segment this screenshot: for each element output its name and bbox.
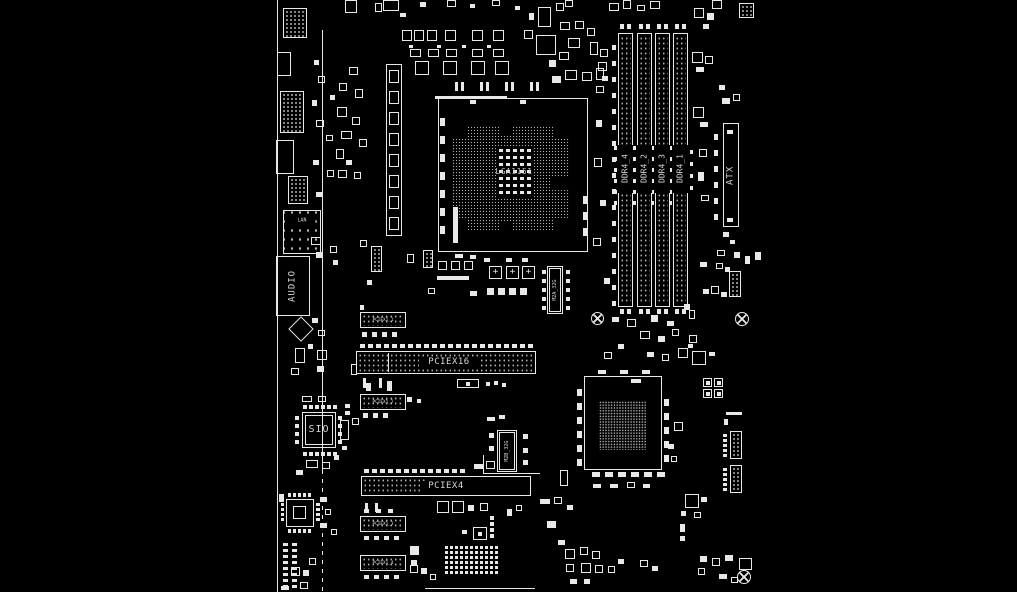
pad — [690, 162, 693, 166]
component-outline — [590, 42, 598, 55]
ddr-slot-pins — [639, 193, 650, 303]
component-pad — [700, 122, 708, 127]
component-pad — [314, 60, 319, 65]
component-outline — [445, 30, 456, 41]
pad-grid-cell — [499, 184, 503, 187]
pad — [315, 452, 319, 456]
pad-grid-cell — [520, 184, 524, 187]
pad-grid-cell — [520, 156, 524, 159]
component-outline — [536, 35, 556, 55]
pad — [598, 370, 606, 374]
codec-diamond-icon — [288, 316, 313, 341]
pad — [714, 150, 718, 156]
pad-grid-cell — [445, 561, 448, 564]
component-dotted-connector — [730, 465, 742, 493]
pad — [620, 370, 628, 374]
component-outline — [486, 461, 495, 469]
pciex1-label: PCIEX1_1 — [370, 316, 396, 323]
pad — [542, 306, 546, 310]
ddr-slot-pins — [657, 36, 668, 145]
component-outline — [594, 158, 602, 167]
component-outline — [524, 30, 533, 39]
component-outline — [627, 319, 636, 327]
pad — [440, 118, 445, 126]
component-outline — [386, 64, 402, 236]
pad — [612, 269, 616, 274]
pad — [303, 529, 306, 533]
pad — [309, 452, 313, 456]
pad — [723, 488, 727, 491]
pad-grid-cell — [455, 556, 458, 559]
pch-bga-grid — [599, 401, 646, 450]
pad — [605, 472, 613, 477]
pad — [368, 344, 373, 348]
atx-label: ATX — [723, 123, 739, 227]
component-outline — [580, 547, 588, 555]
component-outline — [640, 560, 648, 567]
component-pad — [721, 292, 727, 297]
component-outline — [326, 135, 333, 141]
pad-grid-cell — [495, 571, 498, 574]
pad-grid-cell — [475, 556, 478, 559]
pad — [723, 444, 727, 447]
component-outline — [311, 237, 321, 245]
pad — [612, 77, 616, 82]
pad — [490, 534, 494, 538]
component-outline — [692, 351, 706, 365]
pad — [664, 455, 669, 462]
component-pad — [567, 505, 573, 510]
pad — [338, 424, 342, 428]
component-pad — [726, 412, 742, 415]
pad-grid-cell — [527, 156, 531, 159]
pad — [364, 469, 369, 473]
pad — [283, 543, 288, 546]
component-outline — [596, 86, 604, 93]
component-outline — [593, 238, 601, 246]
component-pad — [618, 344, 624, 349]
pad — [614, 179, 617, 183]
component-outline — [300, 582, 308, 589]
pad — [714, 182, 718, 188]
component-outline — [345, 0, 357, 13]
component-pad — [489, 433, 494, 438]
pad — [380, 469, 385, 473]
component-outline — [538, 7, 551, 27]
component-pad — [437, 276, 469, 280]
pad — [293, 493, 296, 497]
component-pad — [410, 546, 419, 555]
pad-grid-cell — [470, 561, 473, 564]
component-pad — [570, 579, 577, 584]
pad — [364, 536, 369, 540]
pad — [440, 344, 445, 348]
component-outline — [471, 61, 485, 75]
pciex16-key — [388, 353, 389, 372]
pad — [394, 536, 399, 540]
pad — [327, 452, 331, 456]
component-capacitor — [473, 527, 487, 540]
component-pad — [480, 82, 483, 91]
motherboard-diagram: LGA1151DDR4_4DDR4_2DDR4_3DDR4_1PCIEX16PC… — [0, 0, 1017, 592]
component-outline — [291, 368, 299, 375]
component-pad — [529, 13, 534, 20]
component-pad — [602, 76, 608, 81]
pad-grid-cell — [460, 561, 463, 564]
pad — [614, 168, 617, 172]
component-pad — [549, 60, 556, 67]
component-outline — [472, 49, 483, 57]
pad-grid-cell — [485, 566, 488, 569]
component-pad — [680, 536, 685, 541]
pad-grid-cell — [485, 551, 488, 554]
pad — [303, 452, 307, 456]
component-pad — [346, 160, 352, 165]
pad — [288, 529, 291, 533]
pad — [723, 434, 727, 437]
component-outline — [587, 28, 595, 36]
pad — [490, 522, 494, 526]
component-pad — [530, 82, 533, 91]
component-outline — [427, 30, 437, 41]
ddr-slot-pins — [620, 36, 631, 145]
pad — [384, 575, 389, 579]
pad-grid-cell — [470, 556, 473, 559]
component-outline — [674, 422, 683, 431]
pad — [612, 125, 616, 130]
component-pad — [455, 254, 463, 258]
pad-grid-cell — [490, 546, 493, 549]
component-outline — [389, 70, 399, 83]
component-capacitor — [457, 379, 479, 388]
pad — [577, 431, 582, 438]
component-pad — [330, 95, 335, 100]
pciex4-label: PCIEX4 — [420, 481, 472, 492]
pad-grid-cell — [490, 556, 493, 559]
component-outline — [693, 107, 704, 118]
pad — [682, 309, 686, 314]
pad — [440, 172, 445, 180]
component-outline — [352, 117, 360, 125]
pad — [633, 157, 636, 161]
pad-grid-cell — [499, 156, 503, 159]
pad — [283, 579, 288, 582]
pad — [400, 344, 405, 348]
pad-grid-cell — [465, 556, 468, 559]
pad-grid-cell — [495, 551, 498, 554]
pad — [682, 24, 686, 29]
component-pad — [701, 497, 707, 502]
component-outline — [325, 509, 331, 515]
component-outline — [565, 70, 577, 80]
component-pad — [455, 82, 458, 91]
component-outline — [359, 139, 367, 147]
pad — [316, 513, 320, 516]
pad — [372, 469, 377, 473]
component-outline — [355, 89, 363, 98]
pad — [416, 344, 421, 348]
pad — [723, 473, 727, 476]
component-pad — [317, 366, 324, 372]
pad-grid-cell — [445, 571, 448, 574]
pad — [669, 201, 672, 205]
pad — [612, 285, 616, 290]
component-pad — [725, 267, 730, 272]
cpu-socket-notch — [452, 126, 468, 138]
pad — [480, 344, 485, 348]
component-outline — [430, 574, 436, 580]
component-outline — [351, 364, 357, 375]
pad-grid-cell — [455, 561, 458, 564]
component-pad — [502, 383, 506, 387]
pad-grid-cell — [475, 571, 478, 574]
pad-grid-cell — [480, 561, 483, 564]
component-outline — [443, 61, 457, 75]
pad-grid-cell — [445, 546, 448, 549]
pad-grid-cell — [490, 566, 493, 569]
component-outline — [493, 30, 504, 41]
component-pad — [707, 13, 714, 20]
component-outline — [446, 49, 457, 57]
pad-grid-cell — [513, 184, 517, 187]
pad — [292, 585, 297, 588]
pad — [428, 469, 433, 473]
component-capacitor — [703, 378, 712, 387]
component-outline — [592, 551, 600, 559]
pad-grid-cell — [480, 571, 483, 574]
pad-grid-cell — [470, 551, 473, 554]
pad — [327, 405, 331, 409]
component-pad — [652, 566, 658, 571]
component-pad — [499, 415, 505, 419]
component-pad — [700, 556, 707, 562]
ddr-slot-label: DDR4_1 — [673, 145, 688, 193]
ddr-slot-label: DDR4_3 — [655, 145, 670, 193]
silkscreen-line — [322, 30, 323, 470]
pad — [460, 469, 465, 473]
component-outline — [336, 149, 344, 159]
pad — [620, 24, 624, 29]
pad — [308, 529, 311, 533]
pad — [295, 424, 299, 428]
component-outline — [495, 61, 509, 75]
component-outline — [389, 91, 399, 104]
component-pad — [484, 258, 490, 262]
pad — [577, 389, 582, 396]
component-outline — [581, 563, 591, 573]
component-pad — [515, 6, 520, 10]
component-outline — [354, 172, 361, 179]
pad-grid-cell — [480, 551, 483, 554]
pad — [440, 226, 445, 234]
cpu-socket-notch — [554, 126, 570, 138]
component-pad — [366, 383, 371, 391]
silkscreen-line — [322, 470, 323, 592]
cpu-socket-notch — [552, 178, 570, 190]
component-pad — [584, 579, 590, 584]
component-outline — [672, 329, 679, 336]
component-outline — [452, 501, 464, 513]
pad — [664, 309, 668, 314]
component-pad — [643, 484, 650, 488]
component-outline — [566, 564, 574, 572]
ddr-slot-pins — [620, 193, 631, 303]
capacitor-plus-marker: + — [522, 266, 535, 279]
component-pad — [470, 291, 477, 296]
component-outline — [650, 1, 660, 9]
pad — [614, 157, 617, 161]
pad — [566, 279, 570, 283]
pad-grid-cell — [495, 556, 498, 559]
component-pad — [468, 505, 474, 511]
pad — [639, 309, 643, 314]
component-outline — [375, 3, 382, 12]
pad-grid-cell — [490, 551, 493, 554]
component-outline — [694, 8, 704, 18]
pad-grid-cell — [520, 149, 524, 152]
pad — [646, 309, 650, 314]
component-pad — [462, 530, 467, 534]
audio-label: AUDIO — [276, 256, 310, 316]
component-pad — [505, 82, 508, 91]
component-pad — [725, 555, 733, 561]
component-outline — [608, 566, 615, 573]
pad — [316, 518, 320, 521]
pad — [420, 469, 425, 473]
component-outline — [711, 286, 719, 294]
component-outline — [339, 83, 347, 91]
pad — [488, 344, 493, 348]
pad — [288, 493, 291, 497]
component-pad — [400, 13, 406, 17]
pad — [472, 344, 477, 348]
component-pad — [667, 321, 674, 326]
component-outline — [480, 503, 488, 511]
component-outline — [698, 568, 705, 575]
pad — [723, 454, 727, 457]
pad — [364, 575, 369, 579]
pad-grid-cell — [475, 566, 478, 569]
component-outline — [712, 0, 722, 9]
component-pad — [279, 494, 284, 502]
pad — [657, 24, 661, 29]
pad-grid-cell — [465, 561, 468, 564]
pad — [283, 549, 288, 552]
pad-grid-cell — [465, 546, 468, 549]
pad — [618, 472, 626, 477]
pad — [583, 228, 587, 236]
m2-connector-label: M2B_32G — [501, 438, 513, 464]
pad — [373, 413, 378, 418]
pad — [440, 208, 445, 216]
component-outline — [739, 558, 752, 570]
pad — [293, 529, 296, 533]
pad-grid-cell — [520, 191, 524, 194]
component-capacitor — [714, 378, 723, 387]
component-outline — [306, 460, 318, 468]
pad — [364, 509, 369, 513]
pad-grid-cell — [460, 566, 463, 569]
pad — [440, 154, 445, 162]
pad-grid-cell — [513, 156, 517, 159]
pad — [388, 509, 393, 513]
component-pad — [647, 352, 654, 357]
component-outline — [389, 133, 399, 146]
pad — [440, 190, 445, 198]
component-pad — [333, 260, 338, 265]
pad — [690, 186, 693, 190]
pad — [338, 440, 342, 444]
pad — [333, 452, 337, 456]
component-outline — [389, 112, 399, 125]
component-pad — [552, 76, 561, 83]
component-outline — [327, 170, 334, 177]
pad — [394, 575, 399, 579]
pad-grid-cell — [455, 571, 458, 574]
pad-grid-cell — [475, 551, 478, 554]
component-outline — [302, 396, 312, 402]
pad-grid-cell — [455, 546, 458, 549]
component-outline — [554, 497, 562, 504]
pad — [392, 344, 397, 348]
pad — [646, 24, 650, 29]
pad — [612, 237, 616, 242]
component-outline — [565, 549, 575, 559]
lan-label: LAN — [289, 216, 316, 224]
capacitor-plus-marker: + — [506, 266, 519, 279]
component-capacitor — [714, 389, 723, 398]
pad — [612, 301, 616, 306]
component-outline — [689, 335, 697, 343]
pad — [490, 528, 494, 532]
pad — [360, 344, 365, 348]
component-pad — [303, 570, 309, 576]
component-pad — [734, 252, 740, 258]
pad-grid-cell — [495, 566, 498, 569]
component-pad — [437, 45, 441, 48]
component-outline — [410, 565, 418, 573]
pad-grid-cell — [445, 556, 448, 559]
component-pad — [547, 521, 556, 528]
pciex16-label: PCIEX16 — [419, 357, 479, 368]
pad-grid-cell — [470, 566, 473, 569]
component-pad — [308, 344, 313, 349]
pad — [392, 332, 397, 337]
component-pad — [523, 460, 528, 465]
component-outline — [414, 30, 424, 41]
pad — [577, 403, 582, 410]
component-pad — [709, 352, 715, 356]
component-outline — [415, 61, 429, 75]
pad — [690, 174, 693, 178]
pad-grid-cell — [450, 551, 453, 554]
pad — [298, 493, 301, 497]
pad-grid-cell — [499, 149, 503, 152]
pad — [690, 150, 693, 154]
ddr-slot-pins — [657, 193, 668, 303]
component-pad — [696, 67, 704, 72]
component-pad — [703, 24, 709, 29]
pad — [566, 297, 570, 301]
pad — [566, 288, 570, 292]
pad — [456, 344, 461, 348]
mounting-hole — [591, 312, 604, 325]
component-pad — [698, 172, 704, 181]
pad-grid-cell — [460, 551, 463, 554]
component-pad — [658, 336, 665, 342]
pad — [614, 146, 617, 150]
component-outline — [637, 5, 645, 11]
